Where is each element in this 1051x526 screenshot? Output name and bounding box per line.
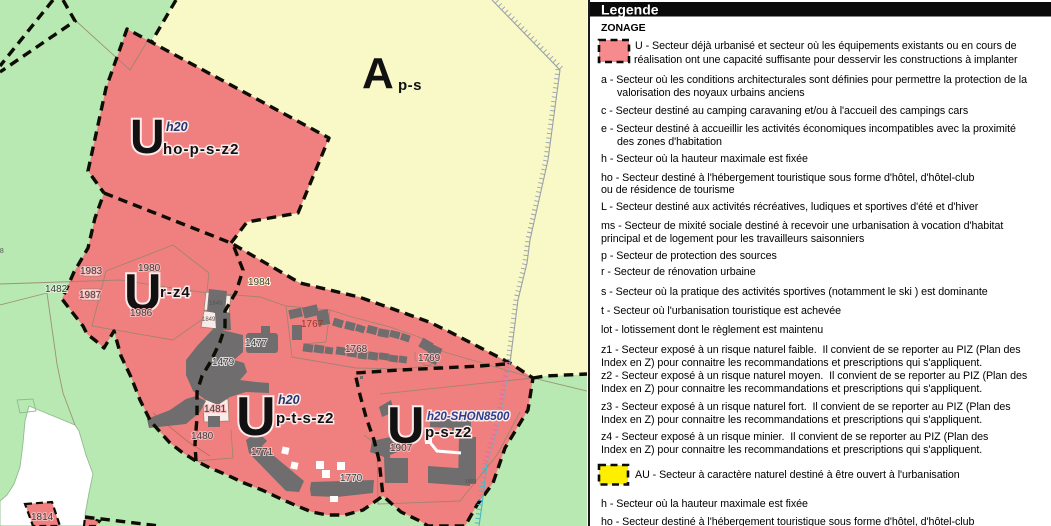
svg-text:1481: 1481 bbox=[204, 404, 227, 415]
svg-text:U: U bbox=[236, 385, 276, 447]
svg-text:U: U bbox=[130, 111, 165, 164]
svg-text:1907: 1907 bbox=[390, 443, 413, 454]
svg-text:1814: 1814 bbox=[31, 512, 54, 523]
svg-text:1477: 1477 bbox=[245, 338, 268, 349]
svg-text:1480: 1480 bbox=[191, 431, 214, 442]
svg-text:Legende: Legende bbox=[601, 2, 659, 18]
svg-text:1980: 1980 bbox=[138, 263, 161, 274]
svg-text:r-z4: r-z4 bbox=[160, 284, 191, 301]
svg-text:1984: 1984 bbox=[248, 277, 271, 288]
svg-text:ho-p-s-z2: ho-p-s-z2 bbox=[163, 141, 240, 158]
svg-text:p-t-s-z2: p-t-s-z2 bbox=[276, 410, 334, 427]
svg-text:1986: 1986 bbox=[130, 308, 153, 319]
svg-text:18: 18 bbox=[0, 248, 4, 255]
svg-text:p-s: p-s bbox=[398, 77, 422, 94]
svg-text:A: A bbox=[362, 49, 394, 98]
svg-text:p-s-z2: p-s-z2 bbox=[425, 424, 472, 441]
svg-text:1479: 1479 bbox=[212, 357, 235, 368]
svg-text:1769: 1769 bbox=[418, 353, 441, 364]
svg-text:1849: 1849 bbox=[202, 317, 216, 323]
svg-text:1909: 1909 bbox=[465, 479, 476, 485]
svg-text:1768: 1768 bbox=[345, 344, 368, 355]
svg-text:1767: 1767 bbox=[301, 319, 324, 330]
svg-text:1770: 1770 bbox=[340, 473, 363, 484]
svg-text:h20: h20 bbox=[166, 120, 188, 134]
svg-text:1849: 1849 bbox=[209, 301, 223, 307]
svg-text:h20-SHON8500: h20-SHON8500 bbox=[427, 411, 510, 423]
svg-text:h20: h20 bbox=[278, 393, 300, 407]
svg-text:1482: 1482 bbox=[45, 284, 68, 295]
svg-text:1771: 1771 bbox=[251, 447, 274, 458]
svg-text:1983: 1983 bbox=[80, 266, 103, 277]
svg-text:1987: 1987 bbox=[79, 290, 102, 301]
